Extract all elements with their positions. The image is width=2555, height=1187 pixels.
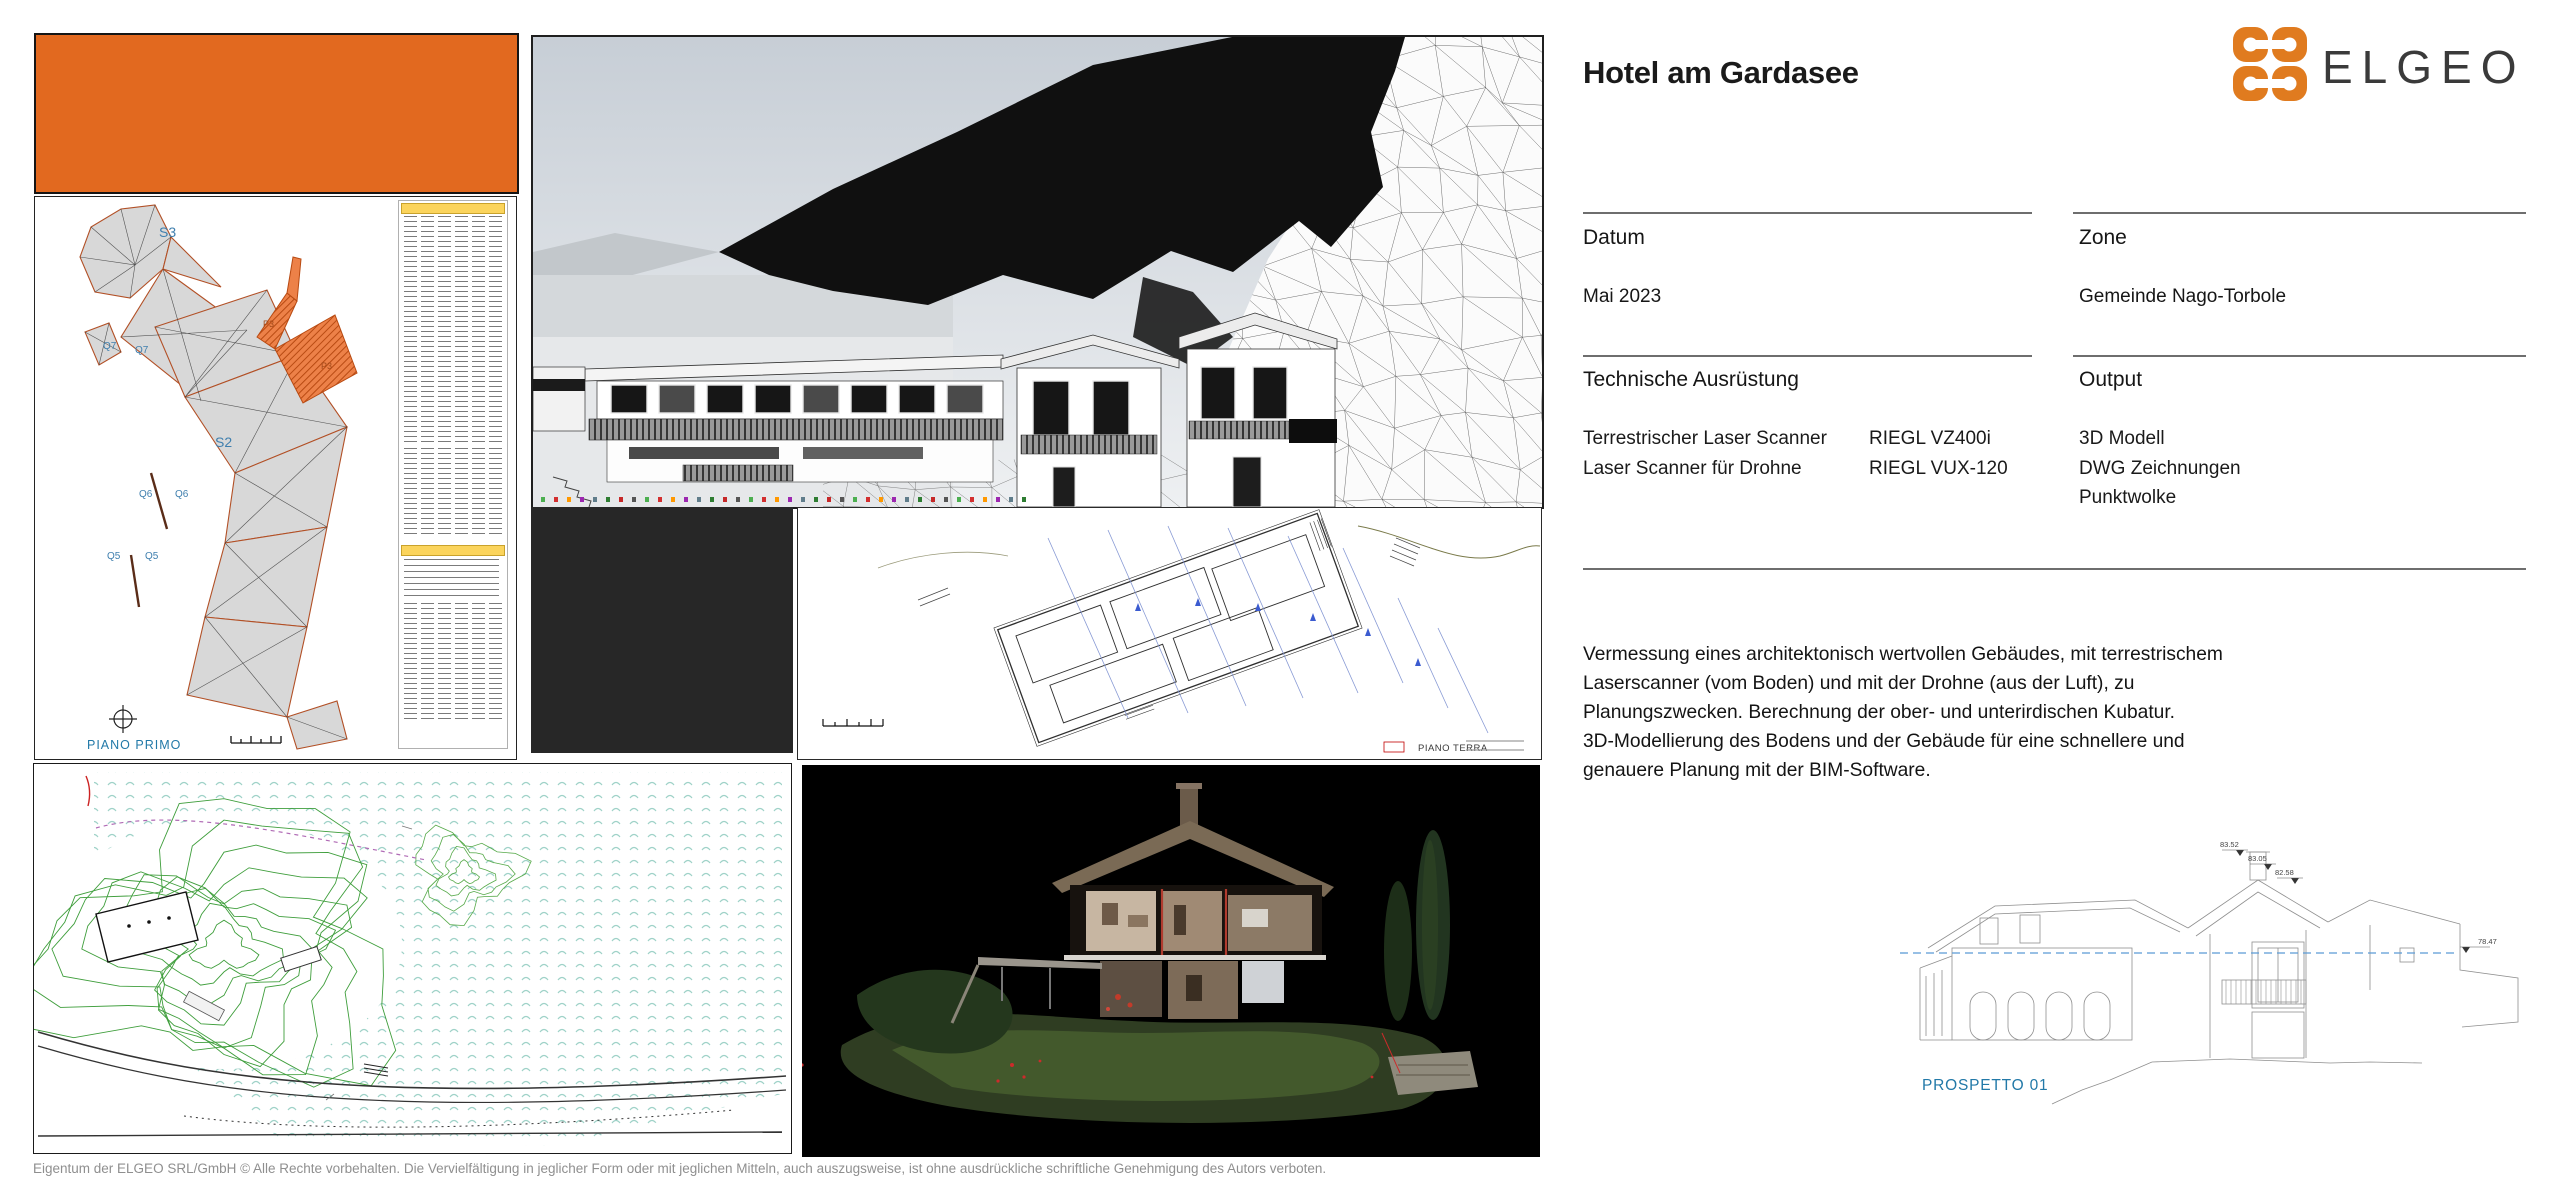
equipment-device: Terrestrischer Laser Scanner: [1583, 424, 1869, 454]
level-marks: 83.52 83.05 82.58 78.47: [2220, 840, 2497, 953]
elevation-drawing: 83.52 83.05 82.58 78.47 PROSPETTO 01: [1900, 830, 2555, 1122]
logo-icon: [2232, 26, 2308, 102]
output-label: Output: [2079, 368, 2142, 392]
table-header-band: [401, 545, 505, 556]
equipment-label: Technische Ausrüstung: [1583, 368, 1799, 392]
scale-bar: [231, 736, 281, 743]
equipment-item: Terrestrischer Laser Scanner RIEGL VZ400…: [1583, 424, 2008, 454]
equipment-list: Terrestrischer Laser Scanner RIEGL VZ400…: [1583, 424, 2008, 483]
project-description: Vermessung eines architektonisch wertvol…: [1583, 640, 2303, 785]
zone-label-q7b: Q7: [135, 345, 149, 356]
logo-wordmark: ELGEO: [2322, 40, 2526, 94]
output-item: 3D Modell: [2079, 424, 2241, 454]
divider: [2073, 355, 2526, 357]
prospetto-label: PROSPETTO 01: [1922, 1077, 2048, 1094]
equipment-model: RIEGL VZ400i: [1869, 424, 1991, 454]
table-rows: [404, 448, 502, 538]
datum-value: Mai 2023: [1583, 286, 1661, 308]
description-line: Vermessung eines architektonisch wertvol…: [1583, 640, 2303, 669]
datum-label: Datum: [1583, 226, 1645, 250]
description-line: genauere Planung mit der BIM-Software.: [1583, 756, 2303, 785]
description-line: 3D-Modellierung des Bodens und der Gebäu…: [1583, 727, 2303, 756]
table-rows: [404, 216, 502, 442]
elevation-lines: [1920, 852, 2518, 1104]
zone-label-p3a: P3: [263, 319, 274, 329]
zone-value: Gemeinde Nago-Torbole: [2079, 286, 2286, 308]
table-header-band: [401, 203, 505, 214]
equipment-model: RIEGL VUX-120: [1869, 454, 2008, 484]
piano-primo-label: PIANO PRIMO: [87, 738, 181, 752]
divider: [2073, 212, 2526, 214]
contour-map-image: [33, 763, 792, 1154]
output-item: DWG Zeichnungen: [2079, 454, 2241, 484]
zone-label-q5a: Q5: [107, 551, 121, 562]
divider: [1583, 212, 2032, 214]
surface-calc-table: [398, 200, 508, 749]
output-item: Punktwolke: [2079, 483, 2241, 513]
project-sheet: S3 S2 Q7 Q7 Q6 Q6 Q5 Q5 P3 P3 PIANO PRIM…: [0, 0, 2555, 1187]
north-compass-icon: [109, 705, 137, 733]
zone-label-p3b: P3: [321, 361, 332, 371]
zone-label: Zone: [2079, 226, 2127, 250]
svg-text:82.58: 82.58: [2275, 868, 2294, 877]
elgeo-logo: ELGEO: [2232, 26, 2532, 110]
svg-text:83.05: 83.05: [2248, 854, 2267, 863]
equipment-item: Laser Scanner für Drohne RIEGL VUX-120: [1583, 454, 2008, 484]
zone-label-s2: S2: [215, 434, 232, 450]
equipment-device: Laser Scanner für Drohne: [1583, 454, 1869, 484]
output-list: 3D Modell DWG Zeichnungen Punktwolke: [2079, 424, 2241, 513]
table-note-lines: [404, 559, 499, 599]
red-stamp: [1384, 742, 1404, 752]
description-line: Laserscanner (vom Boden) und mit der Dro…: [1583, 669, 2303, 698]
divider: [1583, 355, 2032, 357]
table-rows: [404, 603, 502, 723]
piano-terra-label: PIANO TERRA: [1418, 743, 1488, 754]
zone-label-q7a: Q7: [103, 341, 117, 352]
floor-plan-piano-terra: PIANO TERRA: [797, 507, 1542, 760]
zone-label-q6a: Q6: [139, 489, 153, 500]
svg-text:78.47: 78.47: [2478, 937, 2497, 946]
dark-placeholder: [531, 507, 793, 753]
3d-model-image: [531, 35, 1544, 509]
scale-bar: [823, 719, 883, 726]
pointcloud-section-image: [802, 765, 1540, 1157]
description-line: Planungszwecken. Berechnung der ober- un…: [1583, 698, 2303, 727]
zone-label-q6b: Q6: [175, 489, 189, 500]
svg-text:83.52: 83.52: [2220, 840, 2239, 849]
divider: [1583, 568, 2526, 570]
survey-plan-piano-primo: S3 S2 Q7 Q7 Q6 Q6 Q5 Q5 P3 P3 PIANO PRIM…: [34, 196, 517, 760]
page-title: Hotel am Gardasee: [1583, 55, 1859, 91]
copyright-notice: Eigentum der ELGEO SRL/GmbH © Alle Recht…: [33, 1161, 1326, 1176]
zone-label-s3: S3: [159, 224, 176, 240]
zone-label-q5b: Q5: [145, 551, 159, 562]
orange-banner: [34, 33, 519, 194]
